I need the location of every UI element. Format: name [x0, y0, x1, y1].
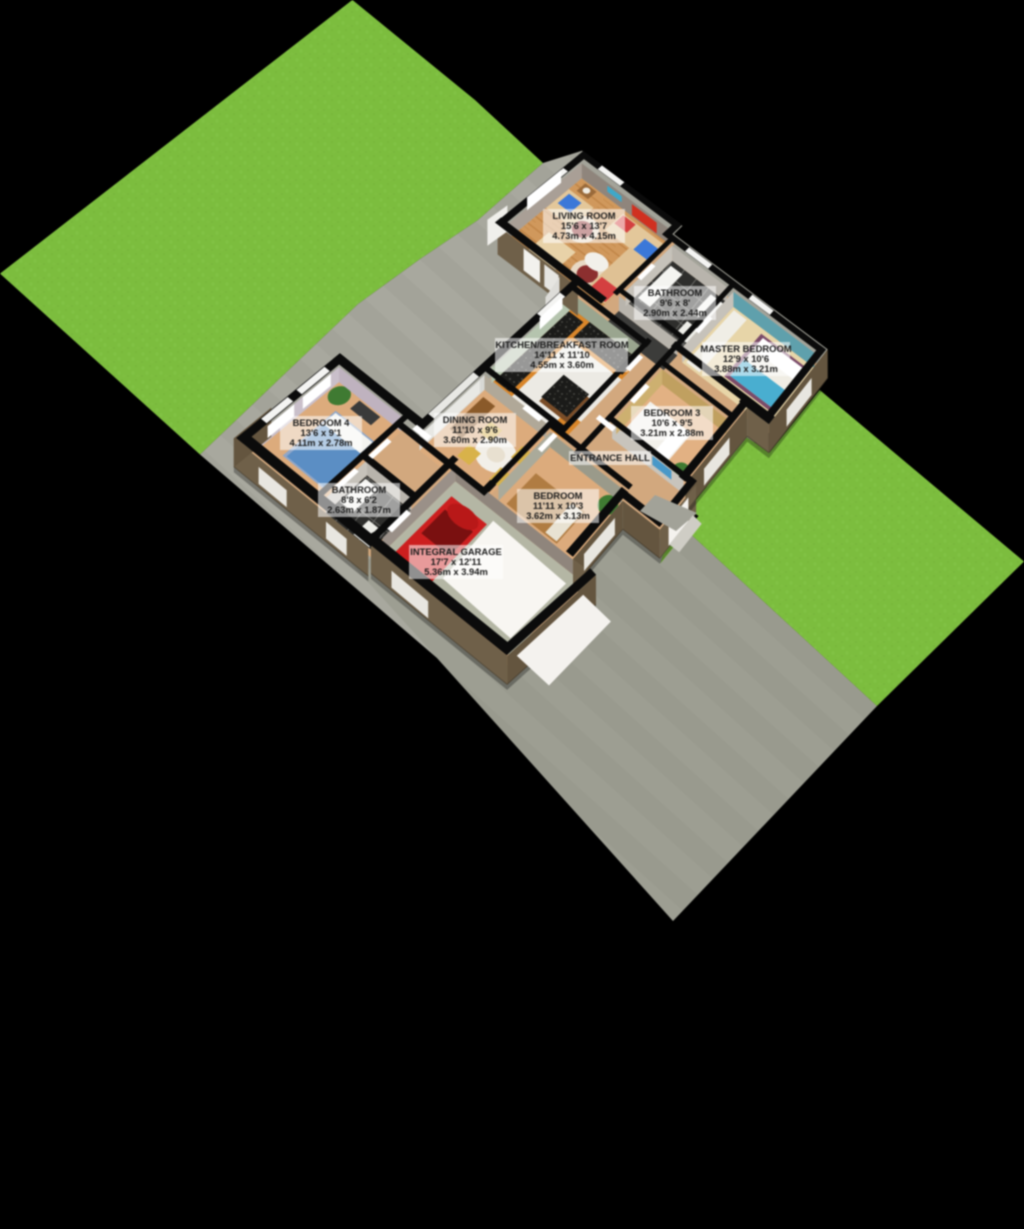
svg-text:3.60m x 2.90m: 3.60m x 2.90m	[443, 434, 507, 445]
svg-text:2.90m x 2.44m: 2.90m x 2.44m	[643, 307, 707, 318]
svg-text:3.21m x 2.88m: 3.21m x 2.88m	[640, 427, 704, 438]
svg-text:2.63m x 1.87m: 2.63m x 1.87m	[327, 504, 391, 515]
svg-text:3.62m x 3.13m: 3.62m x 3.13m	[526, 510, 590, 521]
svg-text:4.55m x 3.60m: 4.55m x 3.60m	[530, 359, 594, 370]
svg-text:5.36m x 3.94m: 5.36m x 3.94m	[424, 566, 488, 577]
svg-text:4.11m x 2.78m: 4.11m x 2.78m	[289, 437, 352, 448]
svg-text:ENTRANCE HALL: ENTRANCE HALL	[570, 452, 650, 463]
svg-text:4.73m x 4.15m: 4.73m x 4.15m	[552, 230, 616, 241]
svg-text:3.88m x 3.21m: 3.88m x 3.21m	[714, 363, 778, 374]
